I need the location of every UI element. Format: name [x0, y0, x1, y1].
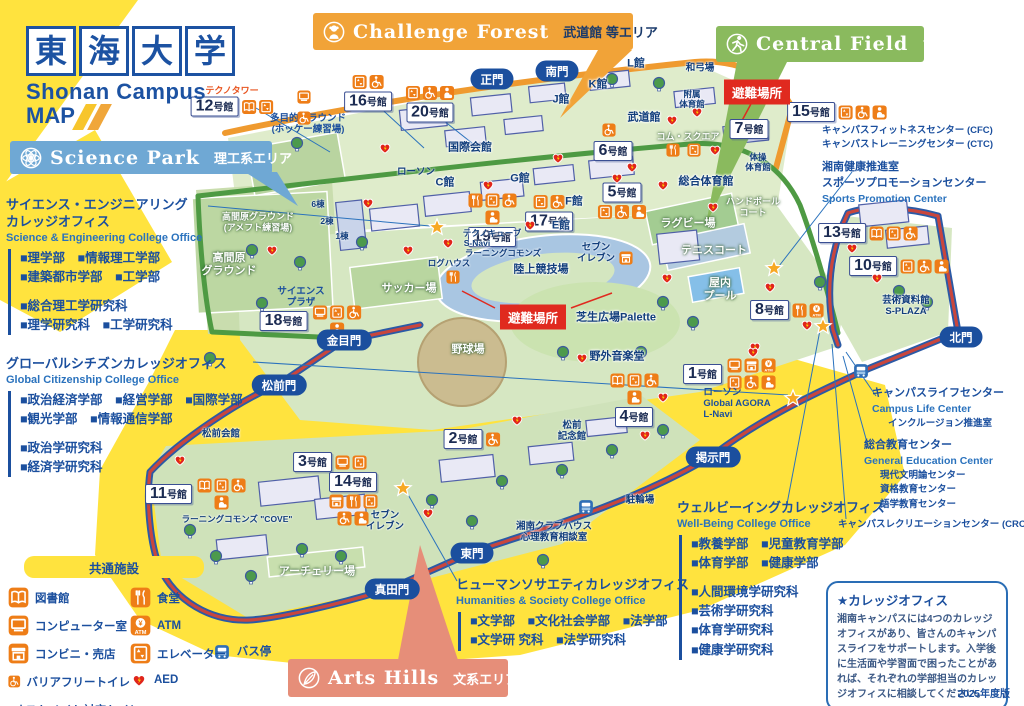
banner-subtitle: 文系エリア: [453, 669, 518, 688]
building-6: 6号館: [594, 141, 633, 161]
aed-icon: [173, 453, 188, 468]
computer-icon: [335, 455, 350, 470]
gate-金目門: 金目門: [317, 330, 372, 351]
aed-icon: [378, 141, 393, 156]
campus-name: Shonan Campus: [26, 79, 235, 105]
elevator-icon: [406, 86, 421, 101]
wheelchair-icon: [917, 259, 932, 274]
building-7: 7号館: [730, 119, 769, 139]
legend-title: 共通施設: [24, 556, 204, 578]
wheelchair-icon: [231, 478, 246, 493]
gate-東門: 東門: [451, 543, 494, 564]
food-icon: [666, 143, 680, 157]
building-16: 16号館: [344, 75, 392, 112]
legend-item-store: コンビニ・売店: [8, 643, 130, 664]
place-label: セブンイレブン: [366, 510, 404, 532]
building-label: 1号館: [683, 364, 722, 384]
annotation-line: キャンパストレーニングセンター (CTC): [822, 138, 993, 152]
monkey-icon: [323, 21, 345, 43]
legend-item-atm: ATM: [130, 615, 226, 636]
place-label: K館: [589, 79, 608, 92]
annotation-line: キャンパスフィットネスセンター (CFC): [822, 124, 993, 138]
annotation-line: 湘南健康推進室: [822, 160, 987, 176]
place-label: ラーニングコモンズ "COVE": [182, 514, 293, 524]
aed-icon: [551, 151, 566, 166]
aed-icon: [575, 351, 590, 366]
wheelchair-icon: [8, 671, 21, 692]
place-label: 総合体育館: [679, 176, 734, 189]
annotation: 総合教育センターGeneral Education Center現代文明論センタ…: [864, 438, 993, 512]
star-icon: [393, 478, 413, 498]
area-banner-challenge-forest: Challenge Forest武道館 等エリア: [313, 13, 633, 50]
store-icon: [619, 251, 633, 265]
banner-title: Arts Hills: [328, 667, 439, 689]
legend-column-2: 食堂ATMエレベーターAED: [130, 587, 226, 706]
place-label: ラグビー場: [661, 218, 716, 231]
wheelchair-icon: [423, 86, 438, 101]
elevator-icon: [352, 75, 367, 90]
aed-icon: [746, 345, 761, 360]
food-icon: [130, 587, 151, 608]
atm-icon: [761, 358, 776, 373]
elevator-icon: [214, 478, 229, 493]
wheelchair-icon: [602, 123, 616, 137]
office-global-citizenship: グローバルシチズンカレッジオフィスGlobal Citizenship Coll…: [6, 356, 243, 477]
gate-掲示門: 掲示門: [686, 447, 741, 468]
bus-icon: [853, 363, 870, 380]
place-label: 芝生広場Palette: [576, 312, 656, 325]
book-icon: [8, 587, 29, 608]
aed-icon: [690, 105, 705, 120]
legend-item-elevator: エレベーター: [130, 643, 226, 664]
campus-map: ¥ATM: [0, 0, 1024, 706]
aed-icon: [870, 271, 885, 286]
ostomate-icon: [934, 259, 949, 274]
wheelchair-icon: [855, 105, 870, 120]
logo-char: 大: [132, 26, 182, 76]
aed-icon: [708, 143, 723, 158]
wheelchair-icon: [297, 111, 311, 125]
aed-icon: [361, 196, 376, 211]
building-label: 15号館: [787, 102, 835, 122]
building-4: 4号館: [607, 373, 661, 427]
elevator-icon: [687, 143, 701, 157]
legend-column-1: 図書館コンピューター室コンビニ・売店バリアフリートイレオストメイト対応トイレ: [8, 587, 130, 706]
building-1: 1号館: [683, 358, 779, 390]
college-office-star: [393, 478, 413, 498]
aed-icon: [523, 218, 538, 233]
feather-icon: [298, 667, 320, 689]
atom-icon: [20, 147, 42, 169]
computer-icon: [8, 615, 29, 636]
atm-icon: [130, 615, 151, 636]
office-title: サイエンス・エンジニアリング: [6, 197, 202, 214]
place-label: 高間原グラウンド(アメフト練習場): [222, 211, 294, 232]
ostomate-icon: [485, 210, 500, 225]
food-icon: [666, 143, 680, 157]
elevator-icon: [485, 193, 500, 208]
place-label: 駐輪場: [626, 494, 655, 505]
star-icon: [427, 217, 447, 237]
building-label: 8号館: [750, 300, 789, 320]
food-icon: [468, 193, 483, 208]
aed-icon: [421, 506, 436, 521]
place-label: 芸術資料館S-PLAZA: [882, 295, 930, 317]
aed-icon: [706, 200, 721, 215]
place-label: 野外音楽堂: [590, 351, 645, 364]
aed-icon: [660, 271, 675, 286]
aed-icon: [656, 178, 671, 193]
annotation-line: 資格教育センター: [880, 483, 993, 497]
office-title-en: Global Citizenship College Office: [6, 374, 243, 386]
aed-icon: [800, 318, 815, 333]
legend-item-ostomate: オストメイト対応トイレ: [8, 699, 130, 706]
wheelchair-icon: [485, 432, 500, 447]
building-label: 3号館: [293, 452, 332, 472]
store-icon: [329, 494, 344, 509]
elevator-icon: [687, 143, 701, 157]
office-title-en: Humanities & Society College Office: [456, 595, 689, 607]
building-5: 5号館: [598, 183, 647, 220]
office-dept-row: ■理学部 ■情報理工学部: [20, 249, 202, 268]
aed-icon: [441, 236, 456, 251]
annotation: キャンパスライフセンターCampus Life Centerインクルージョン推進…: [872, 386, 1004, 431]
office-title-en: Science & Engineering College Office: [6, 232, 202, 244]
college-office-star: [783, 388, 803, 408]
place-label: 和弓場: [686, 62, 715, 73]
university-logo: 東海大学 Shonan Campus MAP: [26, 26, 235, 130]
food-icon: [446, 270, 460, 284]
aed-icon: [551, 151, 566, 166]
office-dept-row: ■文学部 ■文化社会学部 ■法学部: [470, 612, 689, 631]
office-dept-row: ■理学研究科 ■工学研究科: [20, 316, 202, 335]
place-label: コム・スクエア: [656, 132, 719, 143]
banner-title: Challenge Forest: [353, 21, 549, 43]
college-office-star: [427, 217, 447, 237]
place-label: F館: [565, 196, 583, 209]
office-science-engineering: サイエンス・エンジニアリングカレッジオフィスScience & Engineer…: [6, 197, 202, 335]
building-3: 3号館: [293, 452, 367, 472]
place-label: サッカー場: [382, 283, 437, 296]
building-15: 15号館: [787, 102, 887, 122]
book-icon: [241, 99, 256, 114]
aed-icon: [265, 243, 280, 258]
place-label: 6棟: [311, 199, 324, 209]
bus-stop-icon: [578, 499, 595, 516]
building-label: 14号館: [329, 472, 377, 492]
office-dept-row: ■文学研 究科 ■法学研究科: [470, 631, 689, 650]
building-label: 11号館: [145, 484, 192, 504]
office-dept-row: ■政治経済学部 ■経営学部 ■国際学部: [20, 391, 243, 410]
annotation: キャンパスフィットネスセンター (CFC)キャンパストレーニングセンター (CT…: [822, 124, 993, 153]
ostomate-icon: [440, 86, 455, 101]
aed-icon: [656, 390, 671, 405]
elevator-icon: [130, 643, 151, 664]
place-label: 国際会館: [448, 142, 492, 155]
legend-item-wheelchair: バリアフリートイレ: [8, 671, 130, 692]
aed-icon: [130, 671, 148, 689]
bus-icon: [578, 499, 595, 516]
store-icon: [619, 251, 633, 265]
place-label: G館: [510, 173, 530, 186]
elevator-icon: [363, 494, 378, 509]
building-11: 11号館: [145, 478, 249, 510]
aed-icon: [610, 171, 625, 186]
annotation-line: General Education Center: [864, 454, 993, 469]
store-icon: [8, 643, 29, 664]
annotation-line: キャンパスレクリエーションセンター (CRC): [838, 518, 1024, 532]
office-title: ウェルビーイングカレッジオフィス: [677, 500, 885, 517]
elevator-icon: [838, 105, 853, 120]
ostomate-icon: [627, 390, 642, 405]
aed-icon: [173, 453, 188, 468]
info-box-title: ★カレッジオフィス: [837, 590, 997, 609]
place-label: 体操体育館: [745, 152, 771, 172]
bus-stop-icon: [853, 363, 870, 380]
place-label: セブンイレブン: [577, 242, 615, 264]
elevator-icon: [533, 195, 548, 210]
elevator-icon: [627, 373, 642, 388]
aed-icon: [421, 506, 436, 521]
wheelchair-icon: [337, 511, 352, 526]
gate-松前門: 松前門: [252, 375, 307, 396]
banner-subtitle: アスレチックエリア: [922, 35, 1024, 54]
office-title: ヒューマンソサエティカレッジオフィス: [456, 577, 689, 594]
building-label: 7号館: [730, 119, 769, 139]
banner-title: Science Park: [50, 147, 200, 169]
logo-char: 東: [26, 26, 76, 76]
computer-icon: [727, 358, 742, 373]
office-humanities-society: ヒューマンソサエティカレッジオフィスHumanities & Society C…: [456, 577, 689, 651]
elevator-icon: [598, 205, 613, 220]
office-dept-row: ■建築都市学部 ■工学部: [20, 268, 202, 287]
evacuation-badge: 避難場所: [500, 305, 566, 330]
office-dept-row: ■政治学研究科: [20, 439, 243, 458]
wheelchair-icon: [347, 305, 362, 320]
building-label: 6号館: [594, 141, 633, 161]
place-label: ハンドボールコート: [726, 196, 780, 217]
aed-icon: [510, 413, 525, 428]
college-office-star: [813, 316, 833, 336]
building-label: 2号館: [444, 429, 483, 449]
place-label: 野球場: [452, 344, 485, 357]
place-label: バス停: [237, 646, 272, 660]
place-label: 松前記念館: [558, 420, 587, 442]
star-icon: [813, 316, 833, 336]
aed-icon: [800, 318, 815, 333]
building-label: 20号館: [406, 103, 454, 123]
place-label: 屋内プール: [704, 277, 737, 303]
building-label: 18号館: [260, 311, 308, 331]
aed-icon: [660, 271, 675, 286]
elevator-icon: [258, 99, 273, 114]
annotation-line: Sports Promotion Center: [822, 192, 987, 207]
gate-真田門: 真田門: [365, 579, 420, 600]
legend-item-aed: AED: [130, 671, 226, 689]
area-banner-arts-hills: Arts Hills文系エリア: [288, 659, 508, 697]
place-label: 陸上競技場: [514, 264, 569, 277]
building-label: 5号館: [603, 183, 642, 203]
annotation-line: キャンパスライフセンター: [872, 386, 1004, 402]
place-label: L館: [627, 58, 645, 71]
aed-icon: [638, 428, 653, 443]
annotation: キャンパスレクリエーションセンター (CRC): [838, 518, 1024, 532]
university-name: 東海大学: [26, 26, 235, 76]
aed-icon: [361, 196, 376, 211]
aed-icon: [625, 160, 640, 175]
food-icon: [446, 270, 460, 284]
office-dept-row: ■総合理工学研究科: [20, 297, 202, 316]
wheelchair-icon: [615, 205, 630, 220]
book-icon: [197, 478, 212, 493]
place-label: 1棟: [335, 231, 348, 241]
wheelchair-icon: [502, 193, 517, 208]
banner-subtitle: 武道館 等エリア: [563, 22, 658, 41]
aed-icon: [763, 280, 778, 295]
aed-icon: [665, 113, 680, 128]
aed-icon: [845, 241, 860, 256]
place-label: ローソンGlobal AGORAL-Navi: [703, 387, 770, 421]
elevator-icon: [900, 259, 915, 274]
ostomate-icon: [214, 495, 229, 510]
building-label: 16号館: [344, 92, 392, 112]
book-icon: [610, 373, 625, 388]
office-dept-row: ■体育学部 ■健康学部: [691, 554, 885, 573]
place-label: S-Navi: [464, 238, 490, 248]
elevator-icon: [330, 305, 345, 320]
office-dept-row: ■教養学部 ■児童教育学部: [691, 535, 885, 554]
aed-icon: [706, 200, 721, 215]
office-dept-row: ■観光学部 ■情報通信学部: [20, 410, 243, 429]
wheelchair-icon: [644, 373, 659, 388]
aed-icon: [510, 413, 525, 428]
aed-icon: [523, 218, 538, 233]
place-label: E館: [552, 220, 570, 233]
aed-icon: [656, 390, 671, 405]
evacuation-badge: 避難場所: [724, 80, 790, 105]
elevator-icon: [352, 455, 367, 470]
office-title: カレッジオフィス: [6, 214, 202, 231]
place-label: 高間原グラウンド: [202, 252, 257, 278]
aed-icon: [763, 280, 778, 295]
area-banner-central-field: Central Fieldアスレチックエリア: [716, 26, 924, 62]
aed-icon: [610, 171, 625, 186]
place-label: ローソン: [397, 166, 435, 177]
aed-icon: [265, 243, 280, 258]
area-banner-science-park: Science Park理工系エリア: [10, 141, 272, 174]
place-label: ラーニングコモンズ: [465, 248, 541, 258]
place-label: J館: [552, 94, 569, 107]
building-10: 10号館: [849, 256, 949, 276]
runner-icon: [726, 33, 748, 55]
wheelchair-icon: [369, 75, 384, 90]
place-label: テニスコート: [681, 245, 747, 258]
edition-label: 2025年度版: [958, 685, 1010, 700]
aed-icon: [746, 345, 761, 360]
building-13: 13号館: [818, 223, 918, 243]
legend-item-book: 図書館: [8, 587, 130, 608]
banner-title: Central Field: [756, 33, 908, 55]
building-20: 20号館: [406, 86, 455, 123]
ostomate-icon: [872, 105, 887, 120]
gate-正門: 正門: [471, 69, 514, 90]
place-label: テクノキューブ: [463, 228, 521, 238]
wheelchair-icon: [602, 123, 616, 137]
aed-icon: [481, 178, 496, 193]
aed-icon: [481, 178, 496, 193]
wheelchair-icon: [297, 111, 311, 125]
place-label: アーチェリー場: [279, 566, 355, 579]
place-label: ログハウス: [428, 258, 471, 268]
annotation-line: 語学教育センター: [880, 498, 993, 512]
logo-char: 学: [185, 26, 235, 76]
aed-icon: [665, 113, 680, 128]
star-icon: [783, 388, 803, 408]
ostomate-icon: [632, 205, 647, 220]
place-label: 2棟: [320, 216, 333, 226]
map-word: MAP: [26, 103, 235, 130]
star-icon: [764, 258, 784, 278]
aed-icon: [401, 243, 416, 258]
annotation-line: スポーツプロモーションセンター: [822, 176, 987, 192]
aed-icon: [401, 243, 416, 258]
wheelchair-icon: [903, 226, 918, 241]
aed-icon: [441, 236, 456, 251]
annotation-line: 現代文明論センター: [880, 469, 993, 483]
annotation-line: インクルージョン推進室: [888, 417, 1004, 431]
legend-item-food: 食堂: [130, 587, 226, 608]
wheelchair-icon: [550, 195, 565, 210]
place-label: C館: [436, 177, 455, 190]
college-office-star: [764, 258, 784, 278]
computer-icon: [297, 90, 311, 104]
legend-common-facilities: 共通施設 図書館コンピューター室コンビニ・売店バリアフリートイレオストメイト対応…: [8, 556, 238, 706]
office-dept-row: ■経済学研究科: [20, 458, 243, 477]
aed-icon: [625, 160, 640, 175]
food-icon: [792, 303, 807, 318]
food-icon: [346, 494, 361, 509]
aed-icon: [870, 271, 885, 286]
gate-北門: 北門: [940, 327, 983, 348]
annotation-line: 総合教育センター: [864, 438, 993, 454]
office-title: グローバルシチズンカレッジオフィス: [6, 356, 243, 373]
annotation: 湘南健康推進室スポーツプロモーションセンターSports Promotion C…: [822, 160, 987, 207]
book-icon: [869, 226, 884, 241]
place-label: 松前会館: [202, 428, 240, 439]
place-label: サイエンスプラザ: [277, 286, 324, 308]
legend-item-computer: コンピューター室: [8, 615, 130, 636]
aed-icon: [845, 241, 860, 256]
banner-subtitle: 理工系エリア: [214, 148, 292, 167]
gate-南門: 南門: [536, 61, 579, 82]
elevator-icon: [886, 226, 901, 241]
aed-icon: [690, 105, 705, 120]
aed-icon: [656, 178, 671, 193]
aed-icon: [708, 143, 723, 158]
aed-icon: [575, 351, 590, 366]
annotation-line: Campus Life Center: [872, 402, 1004, 417]
store-icon: [744, 358, 759, 373]
aed-icon: [638, 428, 653, 443]
logo-char: 海: [79, 26, 129, 76]
place-label: 湘南クラブハウス心理教育相談室: [516, 521, 592, 543]
building-2: 2号館: [444, 429, 501, 449]
computer-icon: [297, 90, 311, 104]
aed-icon: [378, 141, 393, 156]
building-label: 4号館: [615, 407, 654, 427]
place-label: 武道館: [628, 112, 661, 125]
